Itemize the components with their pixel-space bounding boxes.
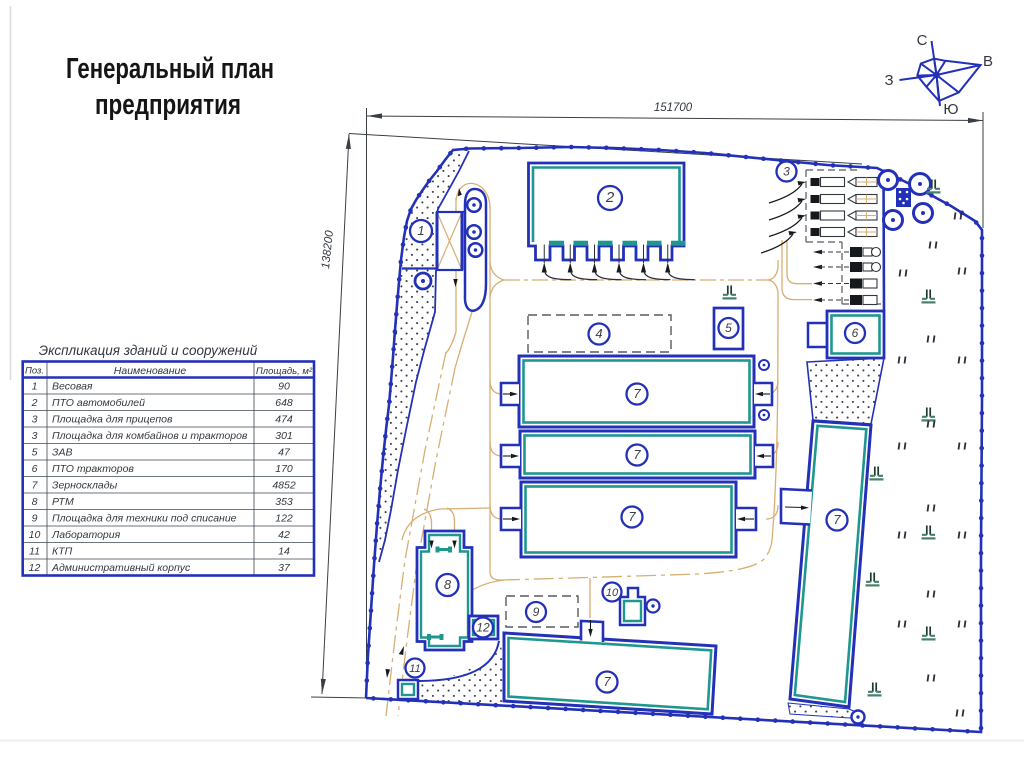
svg-text:7: 7: [633, 447, 641, 462]
svg-text:7: 7: [603, 674, 611, 689]
svg-text:С: С: [917, 32, 928, 49]
svg-text:Генеральный план: Генеральный план: [66, 53, 274, 85]
svg-text:151700: 151700: [654, 102, 693, 114]
svg-text:РТМ: РТМ: [52, 496, 74, 508]
svg-text:3: 3: [32, 430, 38, 442]
svg-text:37: 37: [278, 562, 291, 574]
svg-text:Экспликация зданий и сооружени: Экспликация зданий и сооружений: [39, 343, 258, 358]
svg-text:2: 2: [31, 397, 38, 409]
svg-text:474: 474: [275, 414, 293, 426]
svg-text:8: 8: [444, 577, 452, 592]
svg-text:4: 4: [595, 326, 602, 341]
svg-text:ПТО автомобилей: ПТО автомобилей: [52, 397, 145, 409]
svg-text:7: 7: [833, 512, 841, 527]
svg-text:Площадка для прицепов: Площадка для прицепов: [52, 414, 173, 426]
svg-text:7: 7: [633, 386, 641, 401]
svg-text:Административный корпус: Административный корпус: [51, 562, 191, 574]
svg-text:1: 1: [32, 381, 38, 393]
svg-text:В: В: [983, 53, 993, 70]
svg-text:14: 14: [278, 546, 290, 558]
svg-text:170: 170: [275, 463, 293, 475]
svg-text:122: 122: [275, 513, 293, 525]
svg-text:5: 5: [32, 447, 38, 459]
svg-text:КТП: КТП: [52, 546, 73, 558]
svg-text:11: 11: [29, 546, 40, 558]
svg-text:301: 301: [275, 430, 293, 442]
svg-text:предприятия: предприятия: [95, 89, 241, 121]
svg-text:353: 353: [275, 496, 293, 508]
svg-text:9: 9: [533, 605, 540, 619]
svg-text:1: 1: [417, 223, 424, 238]
svg-text:9: 9: [32, 513, 38, 525]
svg-text:10: 10: [606, 587, 619, 599]
svg-text:ЗАВ: ЗАВ: [52, 447, 72, 459]
svg-text:47: 47: [278, 447, 291, 459]
svg-text:90: 90: [278, 381, 290, 393]
svg-text:Площадка для комбайнов и тракт: Площадка для комбайнов и тракторов: [52, 430, 248, 442]
svg-text:Площадь, м²: Площадь, м²: [256, 366, 313, 377]
svg-text:Поз.: Поз.: [25, 366, 44, 377]
svg-text:5: 5: [725, 321, 732, 335]
svg-text:8: 8: [32, 496, 38, 508]
svg-text:З: З: [884, 72, 893, 89]
svg-text:4852: 4852: [272, 480, 296, 492]
svg-text:11: 11: [409, 663, 420, 675]
svg-text:2: 2: [605, 189, 615, 206]
svg-text:Зерносклады: Зерносклады: [52, 480, 118, 492]
svg-text:6: 6: [852, 326, 859, 340]
svg-text:Весовая: Весовая: [52, 381, 93, 393]
svg-text:6: 6: [32, 463, 38, 475]
svg-text:12: 12: [29, 562, 41, 574]
svg-text:Ю: Ю: [943, 101, 958, 118]
svg-text:12: 12: [476, 621, 490, 635]
svg-text:3: 3: [783, 165, 790, 179]
svg-text:648: 648: [275, 397, 293, 409]
svg-text:10: 10: [29, 529, 41, 541]
svg-text:42: 42: [278, 529, 290, 541]
svg-text:7: 7: [628, 509, 636, 524]
svg-text:3: 3: [32, 414, 38, 426]
svg-text:Лаборатория: Лаборатория: [51, 529, 121, 541]
svg-text:Площадка для техники под списа: Площадка для техники под списание: [52, 513, 237, 525]
svg-text:Наименование: Наименование: [114, 365, 187, 377]
svg-text:ПТО тракторов: ПТО тракторов: [52, 463, 134, 475]
